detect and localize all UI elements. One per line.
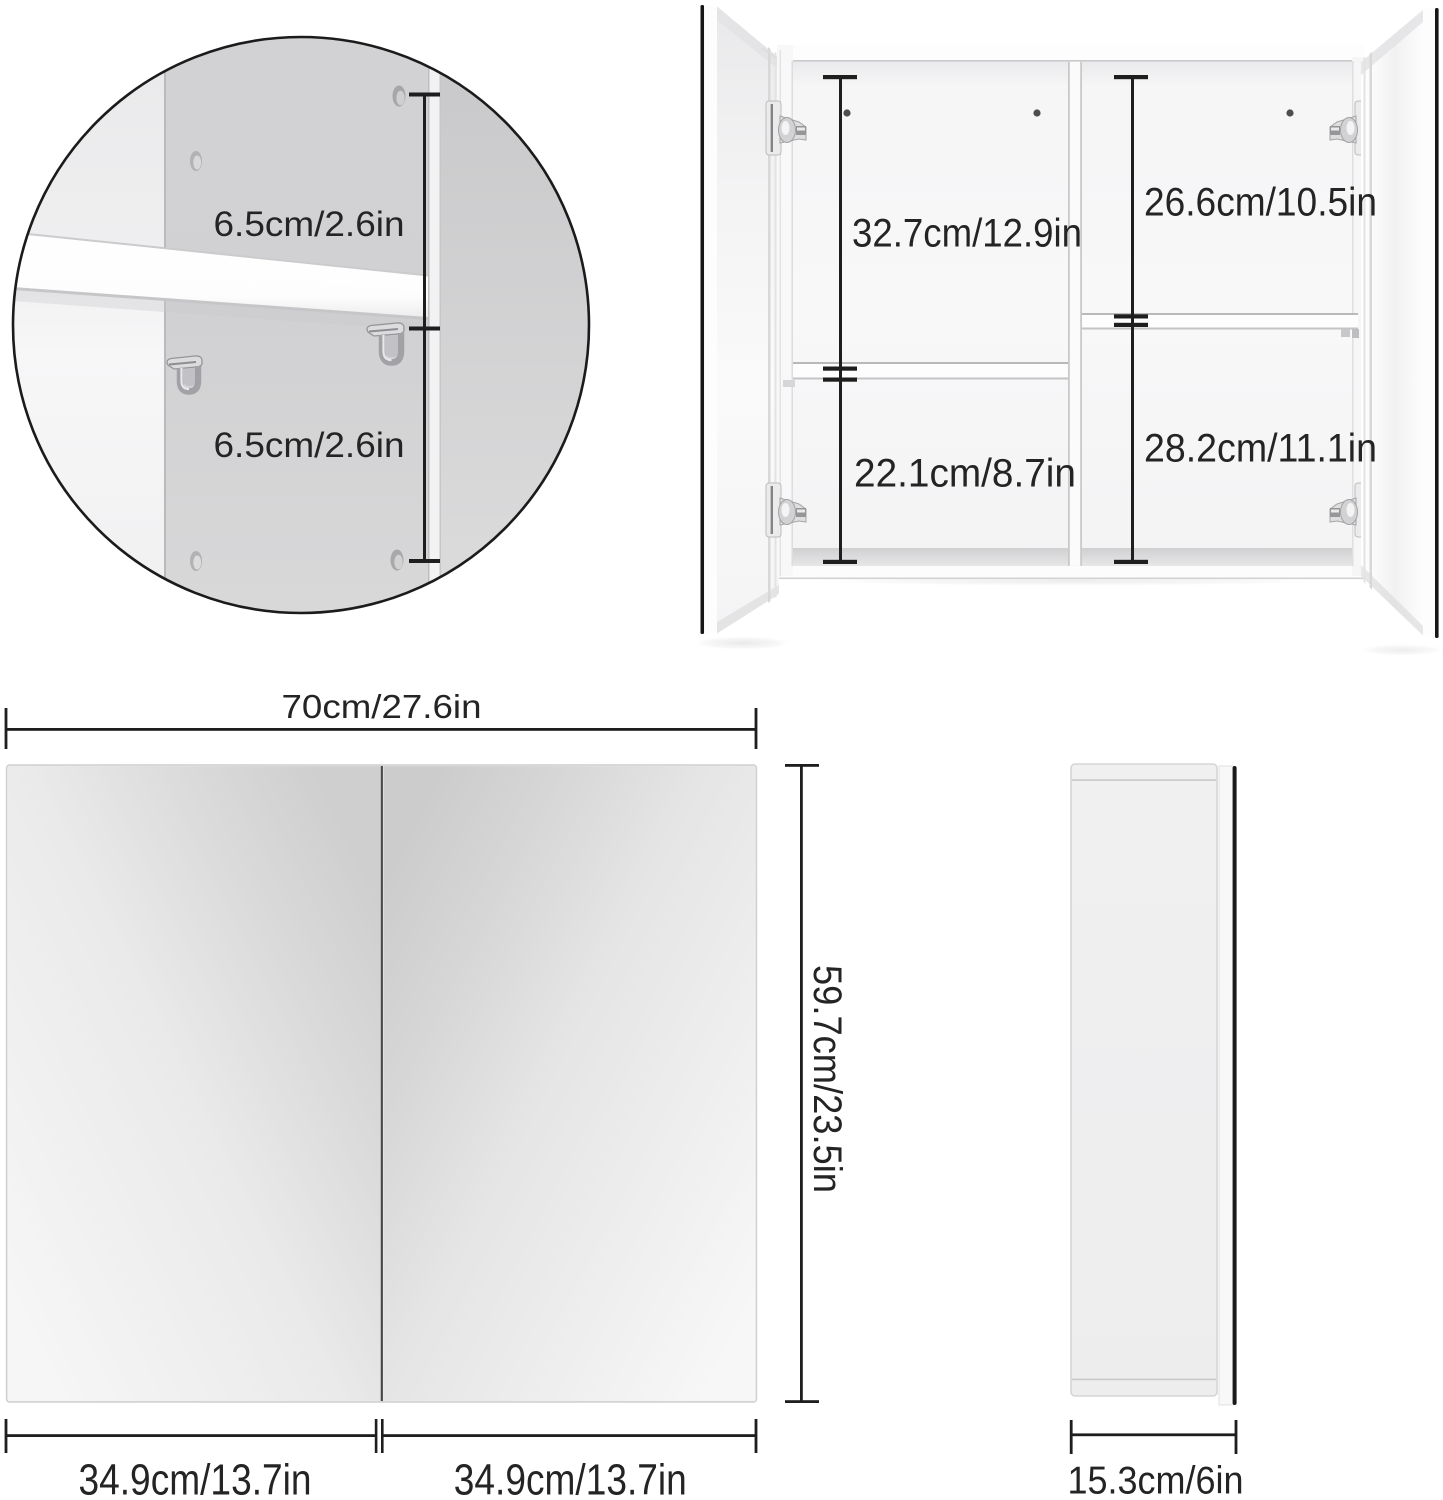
svg-text:22.1cm/8.7in: 22.1cm/8.7in <box>854 452 1076 496</box>
svg-text:26.6cm/10.5in: 26.6cm/10.5in <box>1144 181 1377 225</box>
svg-text:70cm/27.6in: 70cm/27.6in <box>282 689 482 726</box>
svg-text:6.5cm/2.6in: 6.5cm/2.6in <box>214 425 405 465</box>
svg-text:34.9cm/13.7in: 34.9cm/13.7in <box>79 1456 312 1500</box>
svg-text:28.2cm/11.1in: 28.2cm/11.1in <box>1144 427 1377 471</box>
svg-text:34.9cm/13.7in: 34.9cm/13.7in <box>454 1456 687 1500</box>
svg-text:59.7cm/23.5in: 59.7cm/23.5in <box>805 965 849 1193</box>
svg-text:6.5cm/2.6in: 6.5cm/2.6in <box>214 204 405 244</box>
svg-text:32.7cm/12.9in: 32.7cm/12.9in <box>852 212 1082 256</box>
svg-text:15.3cm/6in: 15.3cm/6in <box>1068 1460 1244 1500</box>
